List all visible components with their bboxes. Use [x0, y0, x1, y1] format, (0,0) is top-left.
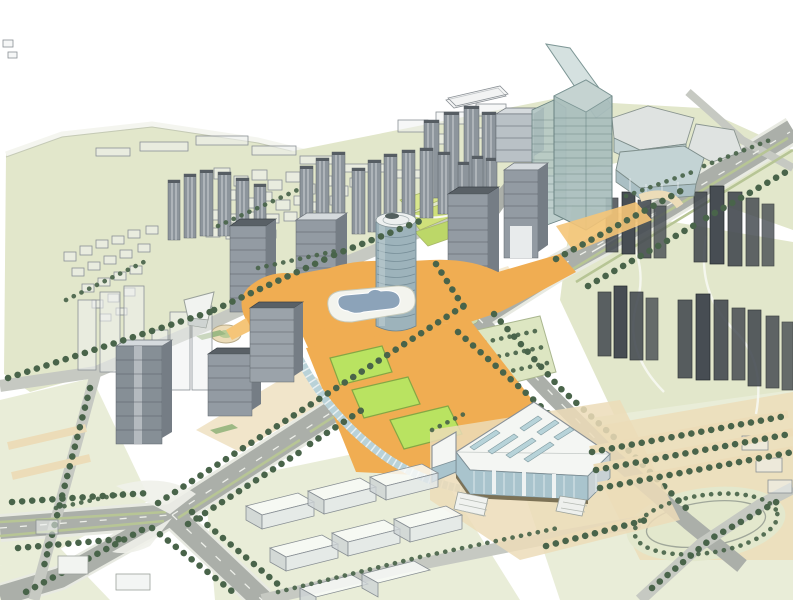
small-building — [58, 556, 88, 574]
small-building — [116, 574, 150, 590]
render-canvas — [0, 0, 793, 600]
masterplan-rendering — [0, 0, 793, 600]
